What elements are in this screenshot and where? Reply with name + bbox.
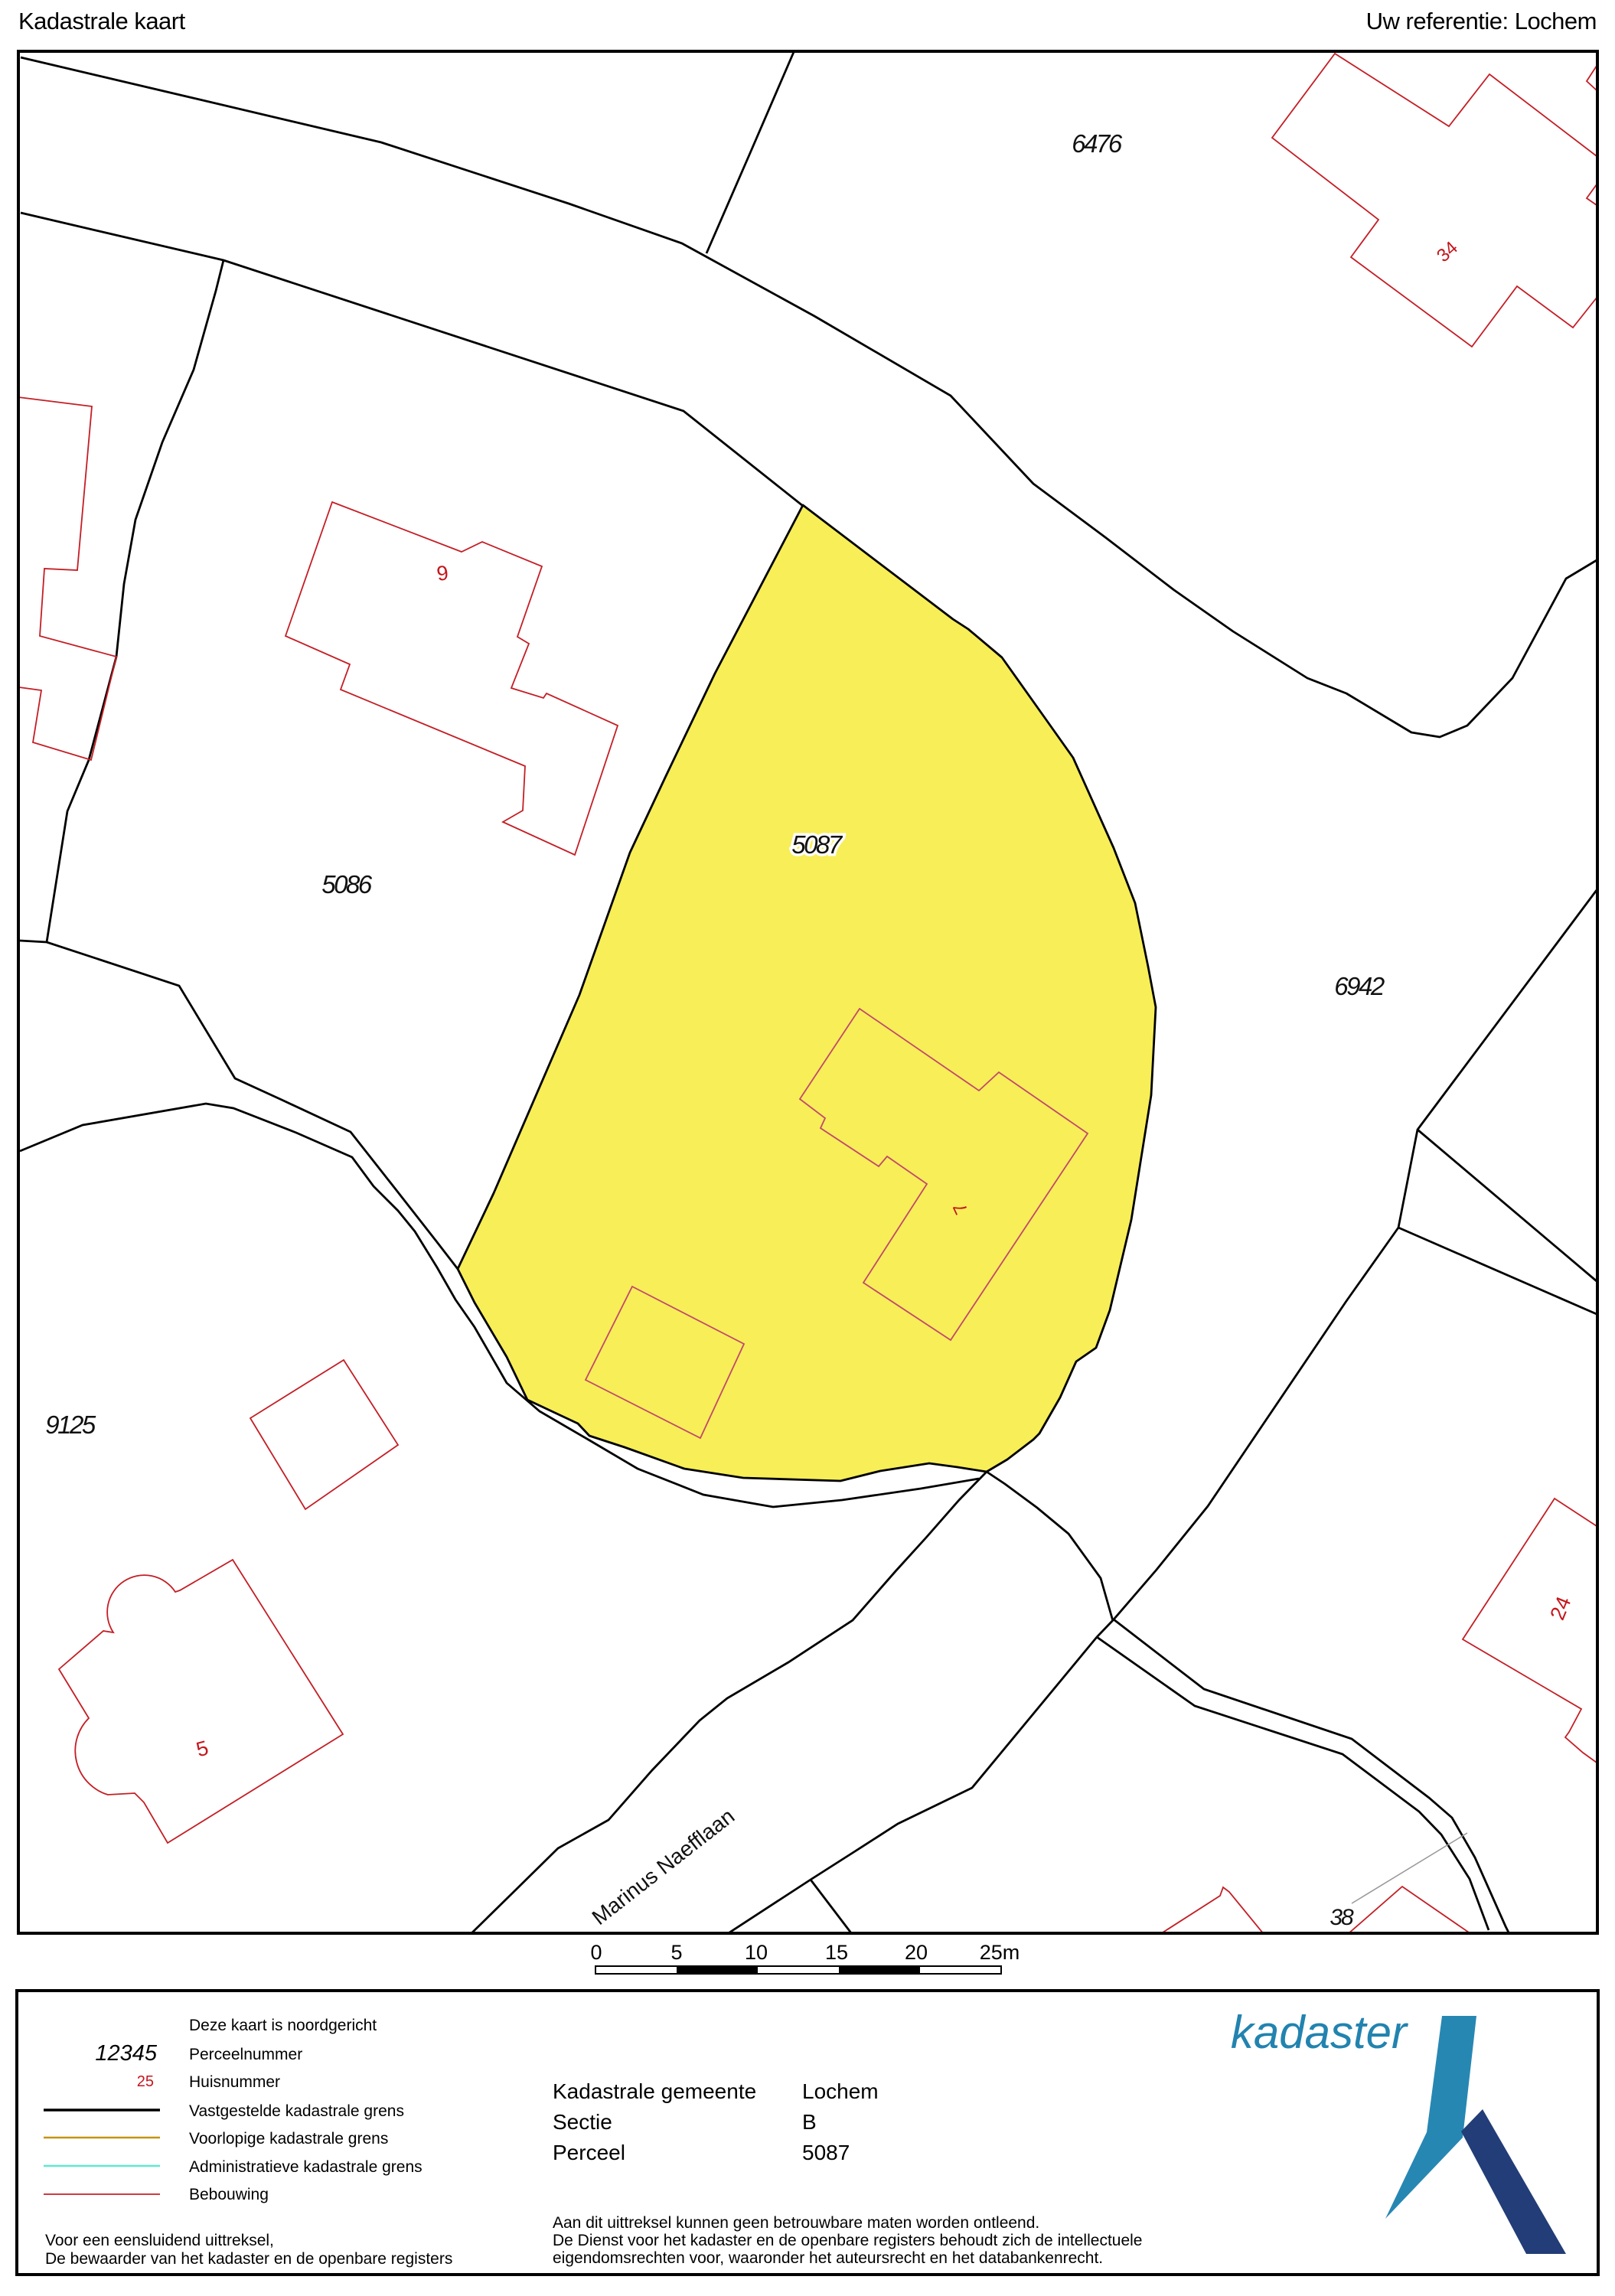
svg-text:Uw referentie: Lochem: Uw referentie: Lochem bbox=[1366, 8, 1597, 34]
svg-text:Perceel: Perceel bbox=[553, 2141, 625, 2164]
svg-text:Administratieve kadastrale gre: Administratieve kadastrale grens bbox=[189, 2158, 423, 2176]
svg-text:5: 5 bbox=[670, 1941, 682, 1964]
svg-text:12345: 12345 bbox=[95, 2041, 158, 2066]
svg-text:20: 20 bbox=[905, 1941, 928, 1964]
svg-text:25: 25 bbox=[137, 2073, 154, 2090]
svg-text:Vastgestelde kadastrale grens: Vastgestelde kadastrale grens bbox=[189, 2102, 404, 2120]
svg-text:5087: 5087 bbox=[802, 2141, 850, 2164]
svg-text:9125: 9125 bbox=[45, 1411, 96, 1439]
svg-text:6476: 6476 bbox=[1072, 129, 1123, 158]
svg-text:Kadastrale gemeente: Kadastrale gemeente bbox=[553, 2079, 756, 2103]
svg-text:De Dienst voor het kadaster en: De Dienst voor het kadaster en de openba… bbox=[553, 2232, 1142, 2249]
svg-text:Voor een eensluidend uittrekse: Voor een eensluidend uittreksel, bbox=[45, 2232, 274, 2249]
svg-text:38: 38 bbox=[1330, 1905, 1354, 1930]
svg-text:Bebouwing: Bebouwing bbox=[189, 2186, 269, 2203]
svg-text:25m: 25m bbox=[980, 1941, 1020, 1964]
svg-text:15: 15 bbox=[825, 1941, 848, 1964]
svg-text:De bewaarder van het kadaster: De bewaarder van het kadaster en de open… bbox=[45, 2250, 452, 2268]
svg-text:0: 0 bbox=[590, 1941, 602, 1964]
svg-text:Lochem: Lochem bbox=[802, 2079, 879, 2103]
svg-text:Perceelnummer: Perceelnummer bbox=[189, 2046, 302, 2063]
svg-text:eigendomsrechten voor, waarond: eigendomsrechten voor, waaronder het aut… bbox=[553, 2249, 1103, 2267]
svg-text:B: B bbox=[802, 2110, 817, 2134]
svg-text:6942: 6942 bbox=[1334, 972, 1385, 1000]
svg-text:Voorlopige kadastrale grens: Voorlopige kadastrale grens bbox=[189, 2130, 388, 2148]
svg-text:Sectie: Sectie bbox=[553, 2110, 612, 2134]
svg-text:Deze kaart is noordgericht: Deze kaart is noordgericht bbox=[189, 2017, 377, 2034]
svg-text:Kadastrale kaart: Kadastrale kaart bbox=[18, 8, 186, 34]
svg-text:Huisnummer: Huisnummer bbox=[189, 2073, 280, 2091]
svg-text:Aan dit uittreksel kunnen geen: Aan dit uittreksel kunnen geen betrouwba… bbox=[553, 2214, 1039, 2232]
svg-text:10: 10 bbox=[745, 1941, 768, 1964]
svg-text:kadaster: kadaster bbox=[1231, 2007, 1408, 2058]
svg-text:5087: 5087 bbox=[791, 830, 843, 859]
svg-text:5086: 5086 bbox=[321, 870, 373, 899]
